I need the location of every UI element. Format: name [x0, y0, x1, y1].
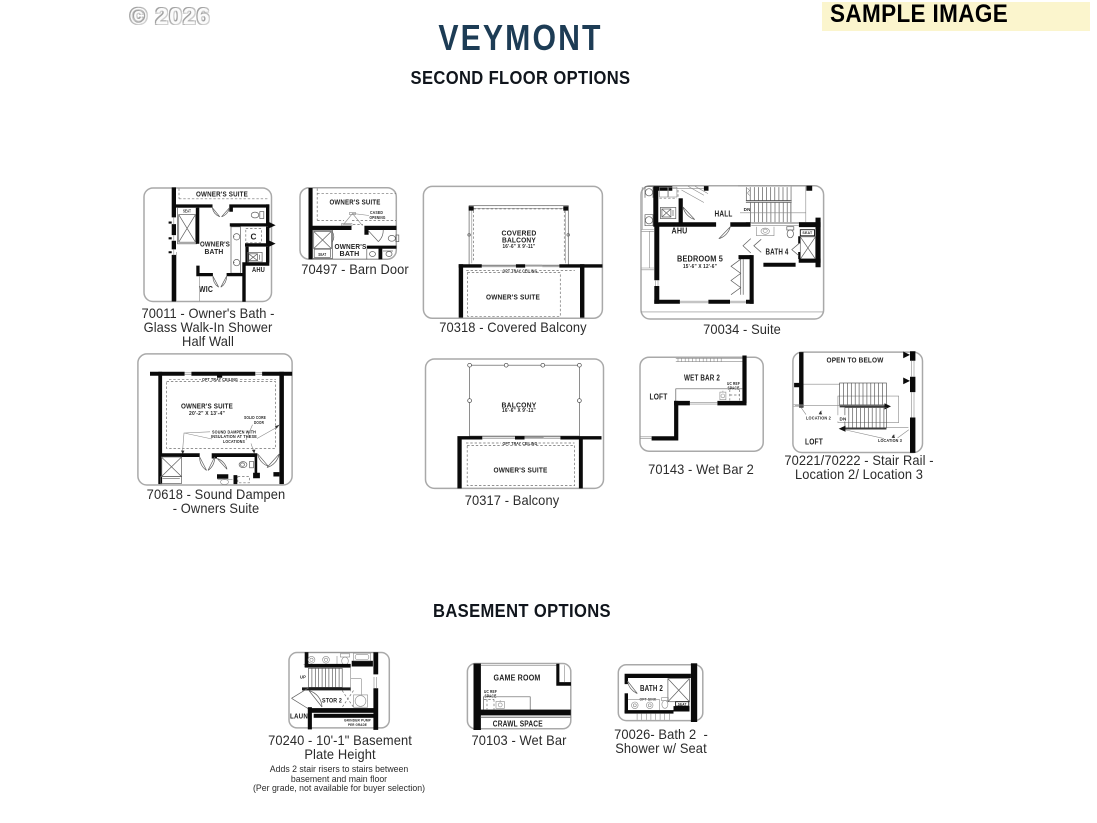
svg-text:16'-6" X 9'-11": 16'-6" X 9'-11" [502, 408, 536, 414]
svg-text:OPEN TO BELOW: OPEN TO BELOW [827, 355, 884, 364]
svg-text:AHU: AHU [672, 227, 688, 236]
svg-text:CRAWL SPACE: CRAWL SPACE [493, 719, 543, 728]
svg-text:DN: DN [840, 417, 847, 422]
svg-text:OPENING: OPENING [370, 215, 386, 220]
svg-text:STOR 2: STOR 2 [322, 698, 342, 705]
svg-text:20'-2" X 13'-4": 20'-2" X 13'-4" [189, 411, 225, 417]
svg-text:SEAT: SEAT [802, 231, 813, 235]
svg-text:OWNER'S SUITE: OWNER'S SUITE [196, 190, 248, 199]
svg-text:SEAT: SEAT [183, 209, 191, 214]
svg-text:LOFT: LOFT [650, 393, 668, 402]
svg-text:OWNER'S SUITE: OWNER'S SUITE [486, 293, 540, 302]
svg-text:BATH: BATH [205, 247, 224, 256]
svg-text:OWNER'S SUITE: OWNER'S SUITE [330, 198, 381, 207]
svg-text:OWNER'S SUITE: OWNER'S SUITE [181, 401, 233, 410]
svg-text:LOCATION 3: LOCATION 3 [878, 438, 902, 443]
svg-text:DOOR: DOOR [254, 420, 264, 425]
svg-text:LOCATION 2: LOCATION 2 [806, 415, 831, 420]
svg-text:SPACE: SPACE [728, 385, 740, 390]
svg-text:BATH 2: BATH 2 [640, 684, 663, 693]
svg-text:GAME ROOM: GAME ROOM [494, 673, 541, 682]
svg-text:HALL: HALL [715, 209, 733, 218]
svg-text:BATH 4: BATH 4 [766, 247, 789, 256]
svg-text:SPACE: SPACE [485, 694, 497, 699]
svg-text:SEAT: SEAT [318, 252, 326, 257]
svg-text:OWNER'S SUITE: OWNER'S SUITE [494, 465, 548, 474]
svg-text:AHU: AHU [252, 267, 265, 274]
svg-text:LAUN: LAUN [290, 714, 308, 721]
svg-text:WET BAR 2: WET BAR 2 [684, 373, 720, 382]
svg-text:DN: DN [744, 207, 751, 212]
svg-text:16'-6" X 9'-11": 16'-6" X 9'-11" [503, 244, 536, 250]
svg-text:15'-6" X 12'-6": 15'-6" X 12'-6" [683, 264, 717, 270]
svg-text:BATH: BATH [340, 249, 360, 258]
svg-text:WIC: WIC [199, 285, 213, 294]
svg-text:BEDROOM 5: BEDROOM 5 [677, 254, 723, 263]
svg-text:SEAT: SEAT [678, 702, 687, 706]
svg-text:PER GRADE: PER GRADE [348, 723, 367, 727]
svg-text:LOFT: LOFT [805, 437, 823, 446]
svg-text:LOCATIONS: LOCATIONS [223, 439, 245, 444]
svg-text:UP: UP [300, 674, 306, 679]
svg-text:C: C [251, 233, 257, 242]
